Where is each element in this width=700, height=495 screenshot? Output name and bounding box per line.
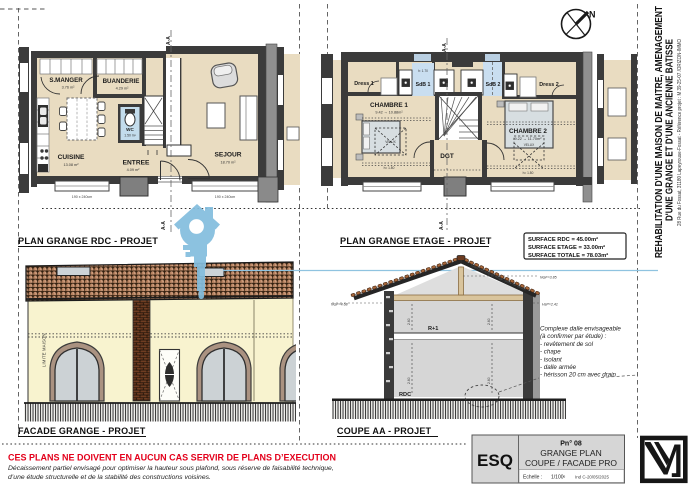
svg-text:- isolant: - isolant xyxy=(540,356,562,363)
svg-text:D'UNE GRANGE ET D'UNE ANCIENNE: D'UNE GRANGE ET D'UNE ANCIENNE BATISSE xyxy=(664,39,676,221)
svg-text:CUISINE: CUISINE xyxy=(58,154,85,161)
svg-text:SdB 1: SdB 1 xyxy=(416,82,431,88)
svg-text:SEJOUR: SEJOUR xyxy=(214,152,241,159)
svg-text:1.50 m²: 1.50 m² xyxy=(124,134,136,138)
svg-text:- revêtement de sol: - revêtement de sol xyxy=(540,341,594,348)
svg-text:A-A: A-A xyxy=(166,36,172,45)
svg-text:SURFACE ETAGE = 33.00m²: SURFACE ETAGE = 33.00m² xyxy=(528,244,605,251)
svg-text:Dress 1: Dress 1 xyxy=(354,81,373,87)
svg-text:SURFACE TOTALE = 78.03m²: SURFACE TOTALE = 78.03m² xyxy=(528,252,608,259)
svg-text:1/100e: 1/100e xyxy=(551,475,566,481)
svg-text:GRANGE PLAN: GRANGE PLAN xyxy=(540,448,601,458)
svg-text:PLAN GRANGE RDC - PROJET: PLAN GRANGE RDC - PROJET xyxy=(18,236,158,246)
svg-text:S.MANGER: S.MANGER xyxy=(49,77,83,84)
svg-text:- dalle armée: - dalle armée xyxy=(540,364,577,371)
svg-text:NGF=3.85: NGF=3.85 xyxy=(540,276,557,280)
svg-text:- chape: - chape xyxy=(540,349,561,356)
svg-text:9.42 → 10.88m²: 9.42 → 10.88m² xyxy=(375,111,403,115)
svg-text:PLAN GRANGE ETAGE - PROJET: PLAN GRANGE ETAGE - PROJET xyxy=(340,236,492,246)
svg-text:Décaissement partiel envisagé: Décaissement partiel envisagé pour optim… xyxy=(8,465,334,472)
svg-text:BUANDERIE: BUANDERIE xyxy=(103,78,140,85)
svg-text:A-A: A-A xyxy=(161,221,167,230)
svg-text:RDC: RDC xyxy=(399,392,411,398)
svg-text:FACADE GRANGE - PROJET: FACADE GRANGE - PROJET xyxy=(18,426,146,436)
svg-text:2.60: 2.60 xyxy=(407,318,411,325)
svg-text:190 x 240cm: 190 x 240cm xyxy=(215,195,236,199)
svg-text:HsP=2.41: HsP=2.41 xyxy=(542,303,558,307)
svg-text:- hérisson 20 cm avec drain: - hérisson 20 cm avec drain xyxy=(540,372,617,379)
svg-text:SURFACE RDC = 45.00m²: SURFACE RDC = 45.00m² xyxy=(528,236,598,243)
svg-text:Complexe dalle envisageable: Complexe dalle envisageable xyxy=(540,326,621,333)
svg-text:h= 1.80: h= 1.80 xyxy=(523,171,534,175)
svg-text:N: N xyxy=(589,10,596,20)
svg-text:CHAMBRE 1: CHAMBRE 1 xyxy=(370,102,408,109)
svg-text:VELUX: VELUX xyxy=(385,140,396,144)
svg-text:28 Rue du Fossat, 31180 Lapeyr: 28 Rue du Fossat, 31180 Lapeyrouse-Fossa… xyxy=(677,39,683,226)
svg-text:CES PLANS NE DOIVENT EN AUCUN: CES PLANS NE DOIVENT EN AUCUN CAS SERVIR… xyxy=(8,453,336,463)
svg-text:R+1: R+1 xyxy=(428,326,438,332)
svg-text:ENTREE: ENTREE xyxy=(123,160,150,167)
svg-text:9.22 → 11.70m²: 9.22 → 11.70m² xyxy=(515,137,543,141)
svg-text:190 x 240cm: 190 x 240cm xyxy=(72,195,93,199)
svg-text:A-A: A-A xyxy=(442,43,448,52)
svg-text:d’une étude structurelle et de: d’une étude structurelle et de la stabil… xyxy=(8,474,211,481)
svg-text:18.70 m²: 18.70 m² xyxy=(221,161,237,165)
svg-text:4.29 m²: 4.29 m² xyxy=(116,87,130,91)
svg-text:13.08 m²: 13.08 m² xyxy=(64,163,80,167)
svg-text:WC: WC xyxy=(126,127,134,132)
svg-text:2.60: 2.60 xyxy=(487,318,491,325)
svg-text:Dress 2: Dress 2 xyxy=(539,82,558,88)
svg-text:A-A: A-A xyxy=(439,221,445,230)
svg-text:h: 1.70: h: 1.70 xyxy=(418,69,428,73)
svg-text:LIMITE MAISON: LIMITE MAISON xyxy=(42,333,47,367)
svg-text:VELUX: VELUX xyxy=(524,143,535,147)
svg-text:Echelle :: Echelle : xyxy=(523,475,542,481)
svg-text:4.09 m²: 4.09 m² xyxy=(127,168,141,172)
svg-text:Pn° 08: Pn° 08 xyxy=(560,440,582,448)
svg-text:ESQ: ESQ xyxy=(477,451,513,470)
svg-text:2.60: 2.60 xyxy=(407,377,411,384)
svg-text:CHAMBRE 2: CHAMBRE 2 xyxy=(509,128,547,135)
svg-text:3.76 m²: 3.76 m² xyxy=(62,86,76,90)
svg-text:SdB 2: SdB 2 xyxy=(486,82,501,88)
svg-text:COUPE AA - PROJET: COUPE AA - PROJET xyxy=(337,426,432,436)
svg-text:h= 1.80: h= 1.80 xyxy=(384,166,395,170)
svg-text:COUPE / FACADE PRO: COUPE / FACADE PRO xyxy=(525,458,617,468)
svg-text:2.60: 2.60 xyxy=(487,377,491,384)
svg-text:Ind C-20/05/2025: Ind C-20/05/2025 xyxy=(575,475,609,480)
svg-text:(à confirmer par étude) :: (à confirmer par étude) : xyxy=(540,333,607,340)
